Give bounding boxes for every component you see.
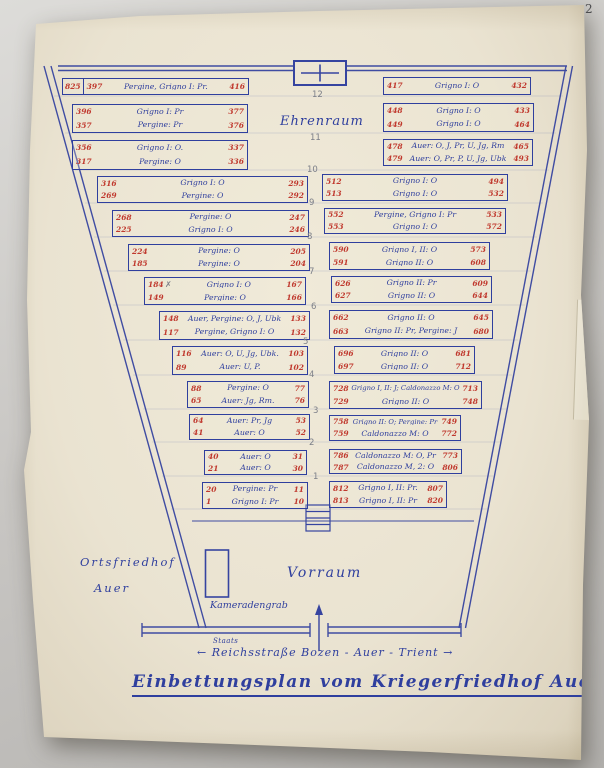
grave-number-start: 41 bbox=[193, 429, 209, 437]
grave-number-start: 513 bbox=[326, 190, 342, 198]
grave-block-left-row11: 396Grigno I: Pr377 357Pergine: Pr376 bbox=[72, 104, 248, 133]
grave-block-left-row4: 116Auer: Ö, U, Jg, Ubk.103 89Auer: U, P.… bbox=[172, 346, 308, 375]
row-number-1: 1 bbox=[313, 472, 318, 482]
grave-label: Grigno I: Ö bbox=[132, 226, 289, 234]
grave-label: Grigno I: Ö bbox=[403, 120, 514, 128]
grave-extra-number: 825 bbox=[63, 79, 84, 94]
grave-label: Grigno I, II: Ö bbox=[349, 246, 470, 254]
grave-number-end: 532 bbox=[488, 190, 504, 198]
grave-number-end: 416 bbox=[229, 83, 245, 91]
grave-number-start: 148 bbox=[163, 315, 179, 323]
grave-number-end: 773 bbox=[442, 452, 458, 460]
grave-number-start: 357 bbox=[76, 122, 92, 130]
grave-number-end: 494 bbox=[488, 178, 504, 186]
row-number-10: 10 bbox=[307, 165, 318, 175]
grave-number-start: 396 bbox=[76, 108, 92, 116]
row-number-12: 12 bbox=[312, 90, 323, 100]
grave-number-end: 681 bbox=[455, 350, 471, 358]
grave-number-end: 337 bbox=[228, 144, 244, 152]
grave-label: Auer: Jg, Rm. bbox=[207, 397, 289, 405]
grave-number-end: 52 bbox=[290, 429, 306, 437]
grave-label: Pergine: Ö bbox=[207, 384, 289, 392]
grave-block-left-row8: 268Pergine: Ö247 225Grigno I: Ö246 bbox=[112, 210, 309, 237]
row-number-2: 2 bbox=[309, 438, 314, 448]
grave-number-start: 663 bbox=[333, 328, 349, 336]
grave-label: Auer: Ö, Pr, P, U, Jg, Ubk bbox=[403, 155, 513, 163]
grave-label: Pergine, Grigno I: Ö bbox=[179, 328, 290, 336]
grave-number-end: 336 bbox=[228, 158, 244, 166]
grave-label: Grigno II: Ö bbox=[349, 314, 473, 322]
page-title: Einbettungsplan vom Kriegerfriedhof Auer bbox=[132, 672, 601, 697]
grave-label: Grigno I: Ö bbox=[344, 223, 486, 231]
grave-number-end: 644 bbox=[472, 292, 488, 300]
grave-label: Grigno I, II: J; Caldonazzo M: Ö bbox=[349, 385, 462, 392]
grave-number-end: 608 bbox=[470, 259, 486, 267]
row-number-4: 4 bbox=[309, 370, 314, 380]
grave-number-start: 449 bbox=[387, 121, 403, 129]
kameradengrab-label: Kameradengrab bbox=[210, 600, 288, 611]
grave-number-start: 185 bbox=[132, 260, 148, 268]
row-number-8: 8 bbox=[307, 232, 312, 242]
grave-block-right-row10: 478Auer: Ö, J, Pr, U, Jg, Rm465 479Auer:… bbox=[383, 139, 533, 166]
grave-block-right-row6: 626Grigno II: Pr609 627Grigno II: Ö644 bbox=[331, 276, 492, 303]
grave-label: Auer: Ö, J, Pr, U, Jg, Rm bbox=[403, 142, 513, 150]
grave-number-end: 376 bbox=[228, 122, 244, 130]
grave-number-start: 448 bbox=[387, 107, 403, 115]
grave-number-end: 10 bbox=[288, 498, 304, 506]
grave-label: Pergine: Ö bbox=[148, 260, 290, 268]
grave-block-left-bottom: 20Pergine: Pr11 1Grigno I: Pr10 bbox=[202, 482, 308, 509]
grave-label: Auer: Ö, U, Jg, Ubk. bbox=[192, 350, 288, 358]
grave-number-end: 807 bbox=[427, 485, 443, 493]
grave-label: Caldonazzo M, 2: Ö bbox=[349, 463, 442, 471]
grave-label: Grigno II: Ö bbox=[349, 398, 462, 406]
grave-label: Pergine, Grigno I: Pr bbox=[344, 211, 486, 219]
grave-number-start: 512 bbox=[326, 178, 342, 186]
grave-number-start: 397 bbox=[87, 83, 103, 91]
grave-number-end: 820 bbox=[427, 497, 443, 505]
grave-label: Pergine: Ö bbox=[132, 213, 289, 221]
grave-label: Grigno II: Pr, Pergine: J bbox=[349, 327, 473, 335]
grave-block-right-row7: 590Grigno I, II: Ö573 591Grigno II: Ö608 bbox=[329, 242, 490, 270]
grave-number-start: 729 bbox=[333, 398, 349, 406]
grave-label: Pergine: Ö bbox=[92, 158, 228, 166]
street-correction-label: Staats bbox=[213, 637, 238, 645]
grave-label: Grigno I: Ö bbox=[342, 190, 488, 198]
grave-number-end: 102 bbox=[288, 364, 304, 372]
grave-block-left-row1: 40Auer: Ö31 21Auer: Ö30 bbox=[204, 450, 307, 475]
grave-number-start: 64 bbox=[193, 417, 209, 425]
grave-block-right-row3: 728Grigno I, II: J; Caldonazzo M: Ö713 7… bbox=[329, 381, 482, 409]
grave-label: Pergine, Grigno I: Pr. bbox=[103, 83, 229, 91]
paper-sheet-wrap: 825 397Pergine, Grigno I: Pr.416 396Grig… bbox=[0, 0, 604, 768]
grave-number-end: 132 bbox=[290, 329, 306, 337]
grave-label: Grigno II: Ö bbox=[354, 350, 455, 358]
grave-number-start: 786 bbox=[333, 452, 349, 460]
grave-number-end: 76 bbox=[289, 397, 305, 405]
corner-page-number: 2 bbox=[585, 2, 593, 16]
grave-number-start: 479 bbox=[387, 155, 403, 163]
grave-label: Grigno I: Ö bbox=[172, 281, 286, 289]
grave-number-end: 103 bbox=[288, 350, 304, 358]
grave-number-end: 133 bbox=[290, 315, 306, 323]
grave-number-start: 317 bbox=[76, 158, 92, 166]
grave-block-left-row9: 316Grigno I: Ö293 269Pergine: Ö292 bbox=[97, 176, 308, 203]
grave-number-start: 117 bbox=[163, 329, 179, 337]
grave-label: Grigno I: Ö bbox=[403, 107, 514, 115]
grave-label: Grigno II: Ö bbox=[354, 363, 455, 371]
grave-block-left-row5: 148Auer, Pergine: Ö, J, Ubk133 117Pergin… bbox=[159, 311, 310, 340]
grave-label: Grigno I: Ö bbox=[117, 179, 288, 187]
grave-label: Grigno I: Pr bbox=[222, 498, 288, 506]
grave-number-end: 533 bbox=[486, 211, 502, 219]
grave-label: Grigno II: Pr bbox=[351, 279, 472, 287]
grave-label: Auer: U, P. bbox=[192, 363, 288, 371]
grave-block-right-row12: 417Grigno I: Ö432 bbox=[383, 77, 531, 95]
grave-label: Caldonazzo M: Ö bbox=[349, 430, 441, 438]
grave-number-start: 626 bbox=[335, 280, 351, 288]
grave-number-start: 759 bbox=[333, 430, 349, 438]
ortsfriedhof-label: Ortsfriedhof bbox=[80, 555, 176, 569]
grave-number-end: 204 bbox=[290, 260, 306, 268]
grave-label: Grigno I: Ö bbox=[403, 82, 511, 90]
grave-number-end: 31 bbox=[287, 453, 303, 461]
grave-label: Auer: Ö bbox=[209, 429, 290, 437]
grave-number-start: 65 bbox=[191, 397, 207, 405]
grave-block-left-row3: 88Pergine: Ö77 65Auer: Jg, Rm.76 bbox=[187, 381, 309, 408]
grave-number-start: 268 bbox=[116, 214, 132, 222]
vorraum-label: Vorraum bbox=[287, 565, 362, 581]
grave-block-right-bottom: 812Grigno I, II: Pr.807 813Grigno I, II:… bbox=[329, 481, 447, 508]
grave-number-end: 680 bbox=[473, 328, 489, 336]
grave-number-end: 465 bbox=[513, 143, 529, 151]
row-number-7: 7 bbox=[309, 267, 314, 277]
grave-label: Pergine: Pr bbox=[222, 485, 288, 493]
grave-number-start: 88 bbox=[191, 385, 207, 393]
paper-sheet: 825 397Pergine, Grigno I: Pr.416 396Grig… bbox=[0, 0, 604, 768]
grave-number-start: 697 bbox=[338, 363, 354, 371]
grave-number-end: 609 bbox=[472, 280, 488, 288]
street-label: ← Reichsstraße Bozen - Auer - Trient → bbox=[197, 646, 453, 659]
grave-number-start: 40 bbox=[208, 453, 224, 461]
grave-block-right-row4: 696Grigno II: Ö681 697Grigno II: Ö712 bbox=[334, 346, 475, 374]
grave-label: Grigno I: Ö. bbox=[92, 144, 228, 152]
grave-label: Grigno II: Ö; Pergine: Pr bbox=[349, 419, 441, 426]
grave-number-end: 806 bbox=[442, 464, 458, 472]
grave-number-end: 645 bbox=[473, 314, 489, 322]
grave-number-start: 116 bbox=[176, 350, 192, 358]
grave-block-right-row1: 786Caldonazzo M: Ö, Pr773 787Caldonazzo … bbox=[329, 449, 462, 474]
grave-number-end: 433 bbox=[514, 107, 530, 115]
grave-label: Grigno I, II: Pr. bbox=[349, 484, 427, 492]
grave-number-start: 149 bbox=[148, 294, 164, 302]
grave-number-start: 662 bbox=[333, 314, 349, 322]
grave-number-start: 787 bbox=[333, 464, 349, 472]
grave-number-end: 772 bbox=[441, 430, 457, 438]
grave-number-end: 77 bbox=[289, 385, 305, 393]
grave-number-end: 493 bbox=[513, 155, 529, 163]
grave-number-end: 11 bbox=[288, 486, 304, 494]
grave-number-start: 590 bbox=[333, 246, 349, 254]
grave-label: Pergine: Ö bbox=[117, 192, 288, 200]
grave-number-end: 246 bbox=[289, 226, 305, 234]
row-number-9: 9 bbox=[309, 198, 314, 208]
grave-number-end: 247 bbox=[289, 214, 305, 222]
grave-number-end: 167 bbox=[286, 281, 302, 289]
grave-number-start: 417 bbox=[387, 82, 403, 90]
grave-number-start: 224 bbox=[132, 248, 148, 256]
grave-number-end: 293 bbox=[288, 180, 304, 188]
grave-label: Auer: Ö bbox=[224, 453, 287, 461]
grave-number-end: 712 bbox=[455, 363, 471, 371]
grave-number-end: 572 bbox=[486, 223, 502, 231]
grave-number-start: 813 bbox=[333, 497, 349, 505]
grave-number-start: 812 bbox=[333, 485, 349, 493]
grave-number-end: 573 bbox=[470, 246, 486, 254]
grave-number-start: 553 bbox=[328, 223, 344, 231]
grave-label: Pergine: Ö bbox=[148, 247, 290, 255]
grave-label: Grigno II: Ö bbox=[351, 292, 472, 300]
grave-number-end: 748 bbox=[462, 398, 478, 406]
grave-label: Grigno I: Ö bbox=[342, 177, 488, 185]
grave-block-right-row11: 448Grigno I: Ö433 449Grigno I: Ö464 bbox=[383, 103, 534, 132]
grave-number-end: 464 bbox=[514, 121, 530, 129]
row-number-3: 3 bbox=[313, 406, 318, 416]
grave-block-right-row5: 662Grigno II: Ö645 663Grigno II: Pr, Per… bbox=[329, 310, 493, 339]
entrance-arrow bbox=[315, 604, 323, 651]
grave-label: Auer, Pergine: Ö, J, Ubk bbox=[179, 315, 290, 323]
grave-number-start: 478 bbox=[387, 143, 403, 151]
grave-block-left-row10: 356Grigno I: Ö.337 317Pergine: Ö336 bbox=[72, 140, 248, 170]
grave-number-end: 377 bbox=[228, 108, 244, 116]
grave-number-start: 552 bbox=[328, 211, 344, 219]
grave-label: Auer: Ö bbox=[224, 464, 287, 472]
grave-block-right-row9: 512Grigno I: Ö494 513Grigno I: Ö532 bbox=[322, 174, 508, 201]
grave-number-end: 53 bbox=[290, 417, 306, 425]
ehrenraum-label: Ehrenraum bbox=[280, 114, 364, 129]
row-number-6: 6 bbox=[311, 302, 316, 312]
grave-number-start: 184 bbox=[148, 281, 164, 289]
grave-label: Caldonazzo M: Ö, Pr bbox=[349, 452, 442, 460]
grave-number-start: 591 bbox=[333, 259, 349, 267]
grave-number-start: 225 bbox=[116, 226, 132, 234]
grave-number-start: 89 bbox=[176, 364, 192, 372]
grave-number-start: 356 bbox=[76, 144, 92, 152]
kameradengrab-rect bbox=[206, 550, 229, 597]
grave-number-start: 20 bbox=[206, 486, 222, 494]
top-gate-cross bbox=[294, 61, 346, 85]
grave-number-end: 713 bbox=[462, 385, 478, 393]
grave-block-left-row12: 825 397Pergine, Grigno I: Pr.416 bbox=[62, 78, 249, 95]
grave-number-start: 758 bbox=[333, 418, 349, 426]
grave-number-start: 627 bbox=[335, 292, 351, 300]
grave-block-left-row6: 184✗Grigno I: Ö167 149Pergine: Ö166 bbox=[144, 277, 306, 305]
grave-number-end: 432 bbox=[511, 82, 527, 90]
ortsfriedhof-auer-label: Auer bbox=[94, 581, 130, 595]
grave-label: Grigno I: Pr bbox=[92, 108, 228, 116]
grave-number-start: 1 bbox=[206, 498, 222, 506]
grave-label: Auer: Pr, Jg bbox=[209, 417, 290, 425]
grave-block-left-row2: 64Auer: Pr, Jg53 41Auer: Ö52 bbox=[189, 414, 310, 440]
grave-label: Pergine: Ö bbox=[164, 294, 286, 302]
grave-number-end: 292 bbox=[288, 192, 304, 200]
row-number-5: 5 bbox=[303, 337, 308, 347]
grave-label: Grigno I, II: Pr bbox=[349, 497, 427, 505]
grave-number-end: 749 bbox=[441, 418, 457, 426]
pencil-x-mark: ✗ bbox=[165, 281, 172, 289]
grave-label: Grigno II: Ö bbox=[349, 259, 470, 267]
grave-block-right-row8: 552Pergine, Grigno I: Pr533 553Grigno I:… bbox=[324, 208, 506, 234]
grave-number-end: 205 bbox=[290, 248, 306, 256]
grave-number-start: 728 bbox=[333, 385, 349, 393]
grave-number-end: 30 bbox=[287, 465, 303, 473]
grave-label: Pergine: Pr bbox=[92, 121, 228, 129]
grave-number-start: 316 bbox=[101, 180, 117, 188]
row-number-11: 11 bbox=[310, 133, 321, 143]
grave-number-start: 696 bbox=[338, 350, 354, 358]
grave-number-end: 166 bbox=[286, 294, 302, 302]
grave-block-left-row7: 224Pergine: Ö205 185Pergine: Ö204 bbox=[128, 244, 310, 271]
photo-background: 825 397Pergine, Grigno I: Pr.416 396Grig… bbox=[0, 0, 604, 768]
grave-number-start: 269 bbox=[101, 192, 117, 200]
grave-block-right-row2: 758Grigno II: Ö; Pergine: Pr749 759Caldo… bbox=[329, 415, 461, 441]
grave-number-start: 21 bbox=[208, 465, 224, 473]
